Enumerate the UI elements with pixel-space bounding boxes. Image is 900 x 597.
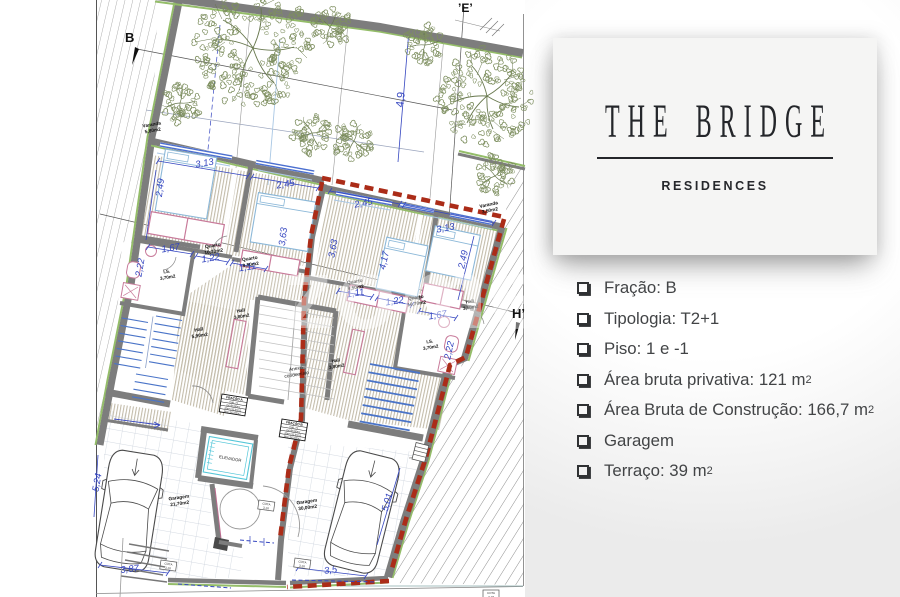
svg-text:3,18: 3,18 bbox=[165, 566, 172, 571]
svg-text:3,18: 3,18 bbox=[299, 564, 306, 569]
svg-text:4,9: 4,9 bbox=[394, 91, 408, 108]
svg-text:’E’: ’E’ bbox=[458, 1, 473, 15]
svg-text:3,87: 3,87 bbox=[120, 563, 140, 576]
svg-text:B: B bbox=[125, 30, 134, 45]
svg-text:zome: zome bbox=[283, 238, 547, 350]
svg-text:3,18: 3,18 bbox=[263, 506, 270, 511]
